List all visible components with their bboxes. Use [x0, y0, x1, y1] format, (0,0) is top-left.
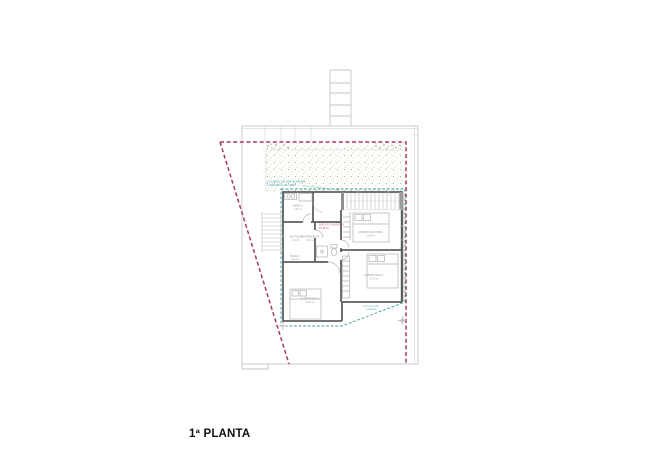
floor-plan-drawing: 1. ACABADO CELOSÍA DE MADERA 2. BARANDIL…	[0, 0, 645, 451]
room-label-bano2: BAÑO 2	[293, 203, 303, 208]
area-summary-line-2: 57,35 m²	[319, 227, 329, 230]
roof-note-line-1: PROYECCIÓN	[364, 305, 379, 308]
bathroom1-fixtures	[317, 245, 338, 258]
page-title: 1ª PLANTA	[189, 428, 250, 440]
bed-bedroom1	[290, 289, 321, 319]
bed-bedroom2	[367, 254, 398, 288]
plan-labels: 1. ACABADO CELOSÍA DE MADERA 2. BARANDIL…	[267, 181, 384, 311]
exterior-stair	[262, 212, 281, 252]
terrace	[263, 143, 404, 191]
floor-plan-page: 1. ACABADO CELOSÍA DE MADERA 2. BARANDIL…	[0, 0, 645, 451]
room-label-dormitorio1: DORMITORIO 1	[301, 297, 321, 301]
wardrobe	[343, 256, 350, 298]
bed-master	[353, 213, 389, 242]
room-area-bano1: 4,90 m²	[291, 258, 299, 261]
room-area-dormitorio2: 11,75 m²	[370, 277, 379, 280]
interior-stair	[344, 193, 402, 210]
survey-markers	[279, 316, 407, 330]
plot-outline	[242, 70, 418, 369]
room-label-distribuidor: DISTRIBUIDOR	[301, 235, 320, 239]
legend-line-2: 2. BARANDILLA DE VIDRIO	[267, 184, 296, 187]
bathroom2-fixtures	[285, 194, 313, 202]
room-label-dormitorio-ppal: DORMITORIO PPAL.	[359, 230, 384, 234]
room-area-bano2: 4,05 m²	[294, 208, 302, 211]
roof-note-line-2: CUBIERTA	[366, 308, 377, 311]
room-area-dormitorio-ppal: 13,90 m²	[366, 234, 375, 237]
closet-master	[343, 212, 350, 240]
room-label-dormitorio2: DORMITORIO 2	[365, 273, 385, 277]
room-area-distribuidor: 5,45 m²	[306, 239, 314, 242]
room-area-dormitorio1: 12,60 m²	[305, 301, 314, 304]
room-area-vestidor: 6,10 m²	[292, 239, 300, 242]
legend-line-1: 1. ACABADO CELOSÍA DE MADERA	[267, 181, 306, 184]
upper-stair	[330, 70, 351, 126]
room-label-bano1: BAÑO 1	[290, 253, 300, 258]
